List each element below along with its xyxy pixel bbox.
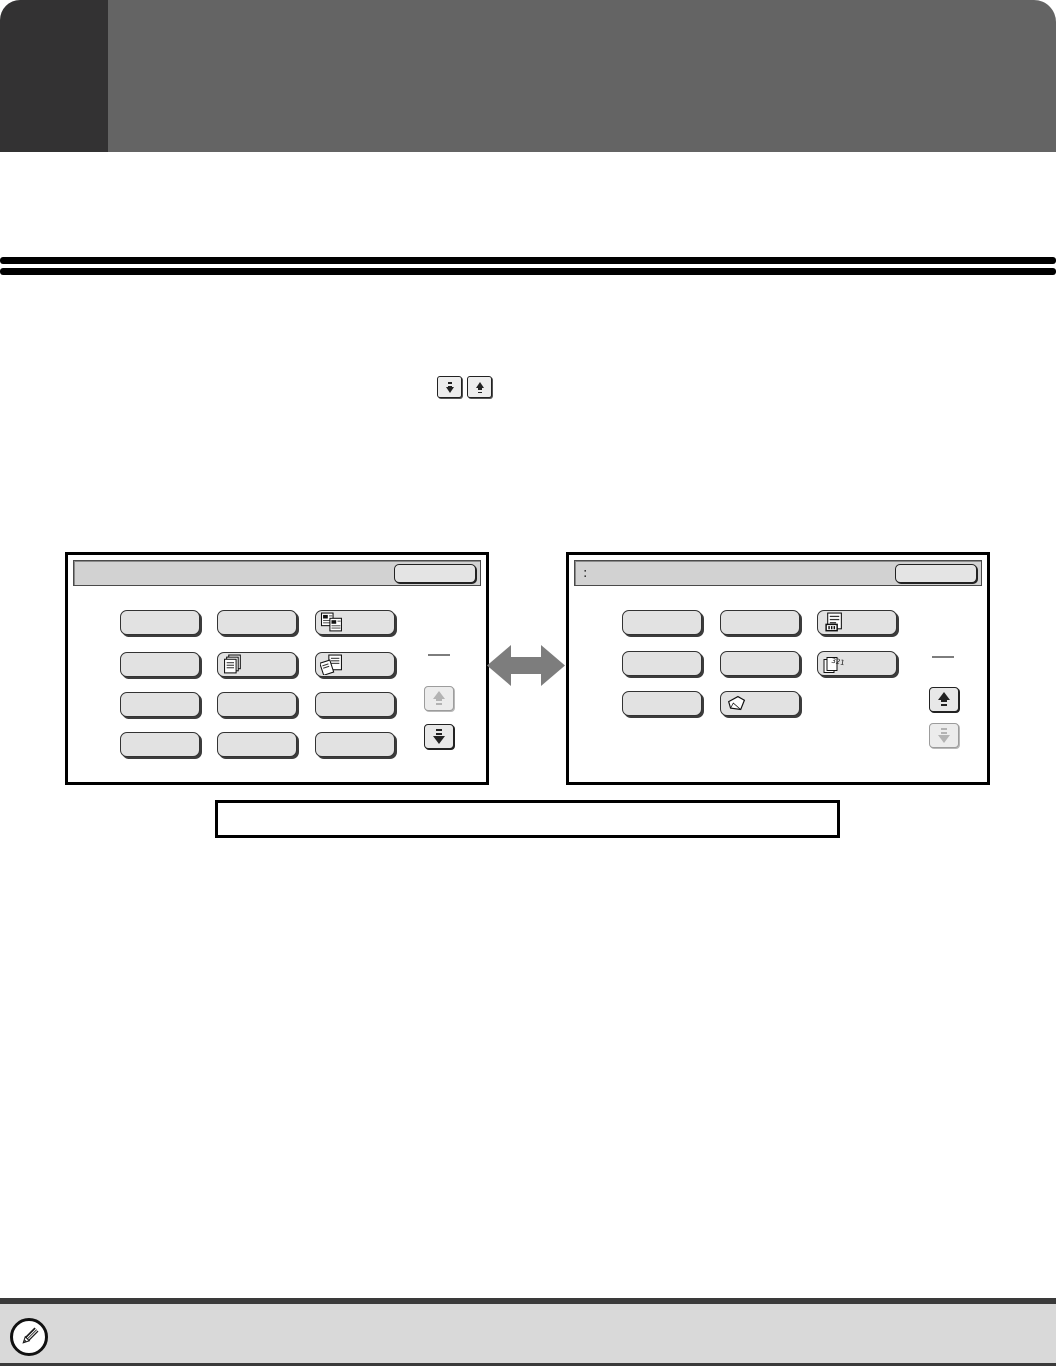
chapter-header: [0, 0, 1056, 152]
inline-scroll-up-key[interactable]: [467, 376, 492, 398]
reverse-order-321-icon: 321: [822, 653, 846, 674]
function-key-r2c2[interactable]: [720, 651, 800, 676]
panel-titlebar: [73, 560, 481, 586]
function-key-r4c3[interactable]: [315, 732, 395, 757]
numbered-page-icon: [822, 612, 846, 633]
function-key-r3c3[interactable]: [315, 692, 395, 717]
function-key-r2c2[interactable]: [217, 652, 297, 677]
function-key-r2c1[interactable]: [622, 651, 702, 676]
function-key-r4c2[interactable]: [217, 732, 297, 757]
function-key-r1c3[interactable]: [817, 610, 897, 635]
function-key-r4c1[interactable]: [120, 732, 200, 757]
document-stack-icon: [222, 654, 246, 675]
function-key-r2c1[interactable]: [120, 652, 200, 677]
two-pages-icon: [320, 612, 344, 633]
chapter-title-band: [108, 0, 1056, 152]
touch-panel-screen-1: [65, 552, 489, 785]
up-arrow-icon: [476, 382, 484, 393]
panel-titlebar-text: :: [575, 566, 587, 581]
page-indicator: [428, 654, 450, 656]
function-key-r2c3[interactable]: [315, 652, 395, 677]
function-key-r1c3[interactable]: [315, 610, 395, 635]
manual-page: : 321: [0, 0, 1056, 1368]
down-arrow-icon: [938, 728, 950, 743]
note-bar: [0, 1298, 1056, 1366]
inline-scroll-down-key[interactable]: [437, 376, 462, 398]
panel-titlebar: :: [574, 560, 982, 586]
function-key-r2c3[interactable]: 321: [817, 651, 897, 676]
ok-button[interactable]: [394, 564, 476, 583]
function-key-r1c2[interactable]: [720, 610, 800, 635]
down-arrow-icon: [433, 729, 445, 744]
ok-button[interactable]: [895, 564, 977, 583]
scroll-up-key[interactable]: [929, 687, 959, 712]
section-divider-rule-top: [0, 257, 1056, 264]
function-key-r1c1[interactable]: [120, 610, 200, 635]
function-key-r3c1[interactable]: [120, 692, 200, 717]
scroll-down-key[interactable]: [424, 724, 454, 749]
up-arrow-icon: [433, 691, 445, 706]
chapter-number-tab: [0, 0, 108, 152]
document-stack-fan-icon: [320, 654, 344, 675]
down-arrow-icon: [446, 382, 454, 393]
pencil-icon: [10, 1318, 48, 1356]
function-key-r3c2[interactable]: [720, 691, 800, 716]
scroll-up-key[interactable]: [424, 686, 454, 711]
page-indicator: [932, 656, 954, 658]
tilted-sheet-icon: [725, 693, 749, 714]
section-divider-rule-bottom: [0, 268, 1056, 275]
function-key-r3c1[interactable]: [622, 691, 702, 716]
up-arrow-icon: [938, 692, 950, 707]
caption-box: [215, 800, 840, 838]
touch-panel-screen-2: : 321: [566, 552, 990, 785]
function-key-r3c2[interactable]: [217, 692, 297, 717]
function-key-r1c1[interactable]: [622, 610, 702, 635]
function-key-r1c2[interactable]: [217, 610, 297, 635]
swap-arrow-icon: [487, 643, 565, 688]
scroll-down-key[interactable]: [929, 723, 959, 748]
